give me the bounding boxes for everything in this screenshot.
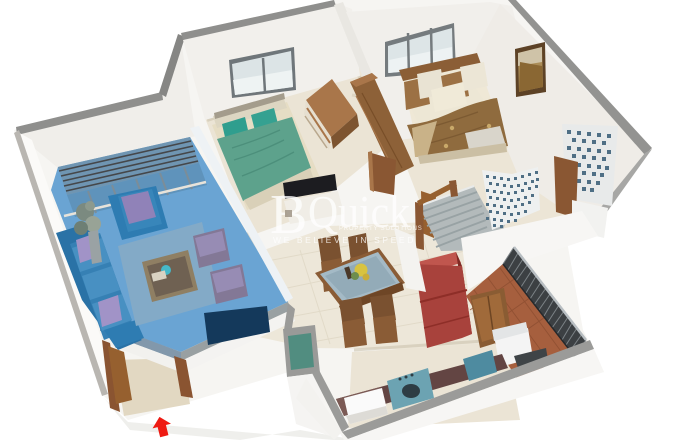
- svg-text:PROPERTY SOLUTIONS: PROPERTY SOLUTIONS: [339, 226, 423, 232]
- svg-text:WE BELIEVE IN SPEED: WE BELIEVE IN SPEED: [273, 235, 416, 245]
